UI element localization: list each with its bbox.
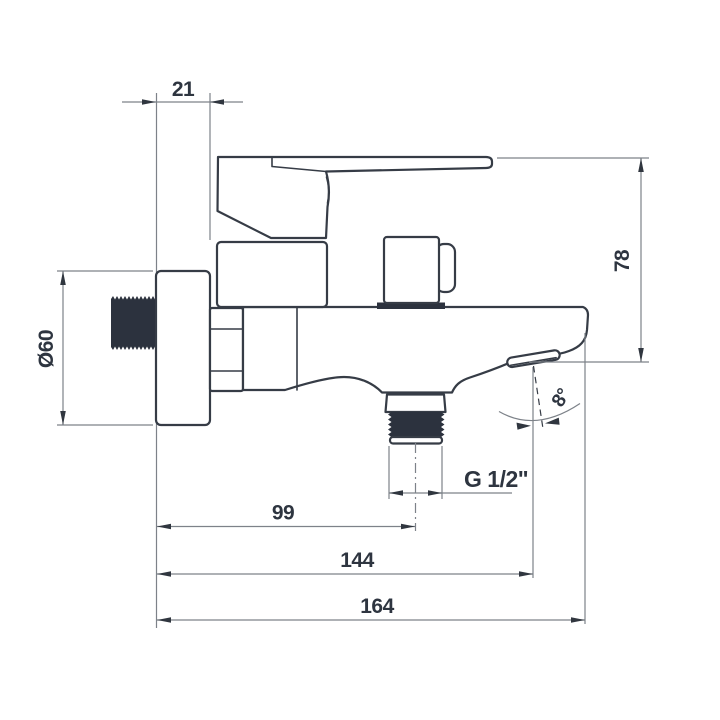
dim-wall-offset-value: 21 [172,78,195,101]
outlet-thread [388,412,445,437]
dim-outlet-thread-value: G 1/2" [464,466,528,492]
arrow-up [60,271,66,285]
outlet-collar [386,395,446,413]
outlet-flange [390,437,442,444]
diverter-knob [384,237,439,303]
arrow-right [519,571,533,577]
dim-flange-diameter-value: Ø60 [35,330,58,368]
arrow-up [638,158,644,172]
dimension-wall-offset: 21 [122,78,243,105]
arrow-down [638,348,644,362]
dimension-reach-to-spout: 144 [157,549,533,577]
dim-total-reach-value: 164 [360,595,394,618]
arrow-toward-vertical [517,423,532,430]
dim-reach-to-spout-value: 144 [340,549,374,572]
spray-axis-dashed [534,366,543,428]
dim-reach-to-outlet-value: 99 [272,502,294,525]
wall-inlet-thread [111,296,157,350]
dim-drop-height-value: 78 [611,249,634,272]
arrow-right [401,524,415,530]
arrow-left [157,571,171,577]
arrow-left [157,524,171,530]
dimension-flange-diameter: Ø60 [35,271,153,425]
faucet-drawing [111,157,588,444]
cartridge-housing [217,242,327,307]
wall-escutcheon [156,271,210,425]
dim-spray-angle-value: 8° [548,385,575,411]
arrow-down [60,411,66,425]
hex-nut [210,308,243,391]
dimension-outlet-thread: G 1/2" [389,443,528,531]
arrow-left [157,617,171,623]
technical-drawing-canvas: 21 Ø60 78 8° G 1/2" [0,0,720,720]
dimension-reach-to-outlet: 99 [157,502,415,530]
mixer-body-and-spout [243,307,588,393]
arrow-right [571,617,585,623]
arrow-right [428,490,442,496]
technical-drawing-page: 21 Ø60 78 8° G 1/2" [0,0,720,720]
arrow-left [389,490,403,496]
arrow-left [142,99,156,105]
arrow-right [210,99,224,105]
lever-handle [218,157,493,238]
